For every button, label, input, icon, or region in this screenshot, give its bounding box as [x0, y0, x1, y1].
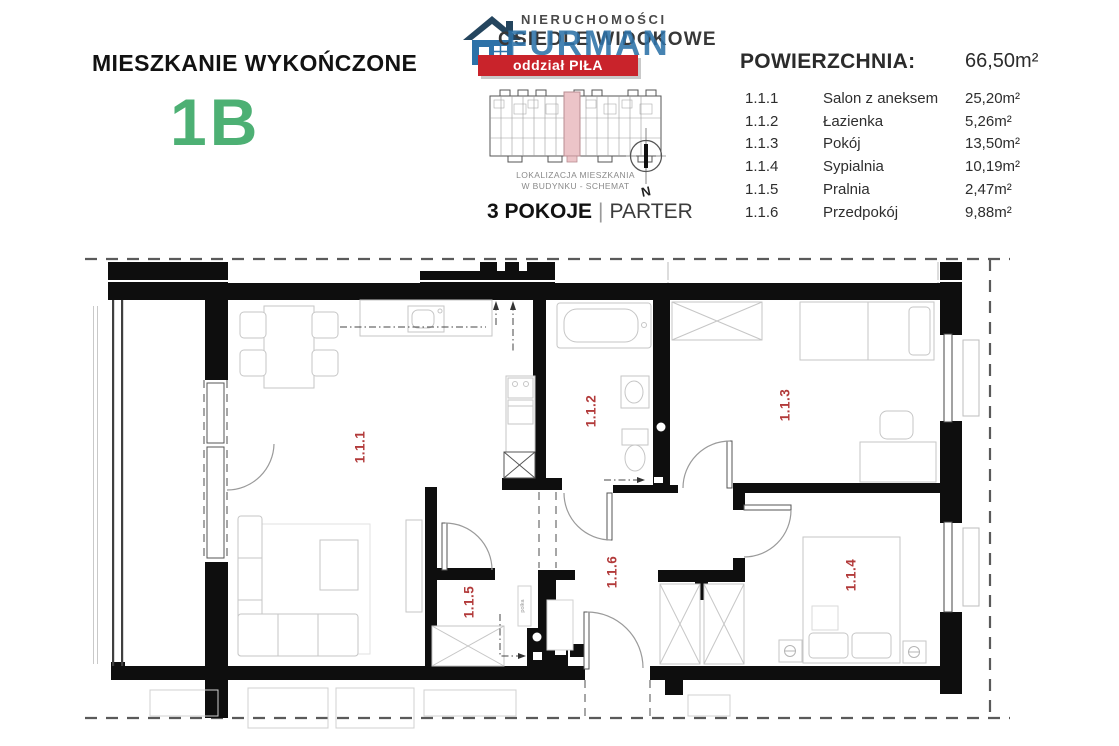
entrance-door-panel [584, 612, 589, 669]
page-title: MIESZKANIE WYKOŃCZONE [92, 50, 417, 77]
bathtub [557, 303, 651, 348]
shelf-label: polka [520, 598, 526, 612]
bathroom-door-arc [564, 493, 611, 540]
chair [312, 350, 338, 376]
tv-stand [406, 520, 422, 612]
window-sill-lines-top [668, 262, 938, 283]
laundry-door-arc [445, 523, 492, 570]
rooms-count: 3 POKOJE [487, 200, 592, 223]
room-label-1-1-1: 1.1.1 [353, 431, 368, 464]
area-heading: POWIERZCHNIA: [740, 50, 965, 74]
pillow [852, 633, 891, 658]
room3-door-panel [727, 441, 732, 488]
highlighted-unit [564, 92, 580, 156]
room-label-1-1-4: 1.1.4 [844, 559, 859, 592]
tall-cabinet-kitchen [504, 452, 535, 478]
logo-banner-oddzial-pila: oddział PIŁA [478, 55, 638, 76]
room-code: 1.1.2 [745, 111, 823, 134]
compass-icon: N [616, 126, 676, 200]
toilet-bowl [625, 445, 645, 471]
chair [312, 312, 338, 338]
room-area: 5,26m² [965, 111, 1045, 134]
vent-annotation-lines [340, 308, 637, 656]
room-area: 25,20m² [965, 88, 1045, 111]
chair [240, 350, 266, 376]
sofa-seat [238, 614, 358, 656]
room3-door-arc [683, 441, 730, 488]
room-area: 10,19m² [965, 156, 1045, 179]
room-label-1-1-2: 1.1.2 [584, 395, 599, 428]
desk [860, 442, 936, 482]
room4-door-arc [744, 510, 791, 557]
balcony-door-arc [227, 444, 274, 490]
room-area: 9,88m² [965, 202, 1045, 225]
table-row: 1.1.1 Salon z aneksem 25,20m² [745, 88, 1045, 111]
bathroom-door-panel [607, 493, 612, 540]
table-row: 1.1.6 Przedpokój 9,88m² [745, 202, 1045, 225]
hob [508, 378, 533, 398]
balcony-door-panel [207, 383, 224, 443]
right-window-2 [944, 522, 979, 612]
room-code: 1.1.5 [745, 179, 823, 202]
toilet-cistern [622, 429, 648, 445]
floor-plan-sheet: 1.1.1 1.1.2 1.1.3 1.1.4 1.1.5 1.1.6 polk… [0, 0, 1119, 746]
wardrobe-room3 [672, 302, 762, 340]
pillow [809, 633, 848, 658]
room-name: Pokój [823, 133, 965, 156]
rooms-floor-line: 3 POKOJE|PARTER [487, 200, 693, 224]
pillow [909, 307, 930, 355]
room-name: Pralnia [823, 179, 965, 202]
hall-cabinet [547, 600, 573, 650]
dining-table [264, 306, 314, 388]
washer-laundry [432, 626, 504, 666]
room-area: 13,50m² [965, 133, 1045, 156]
room-code: 1.1.6 [745, 202, 823, 225]
separator: | [592, 200, 609, 223]
room-label-1-1-6: 1.1.6 [605, 556, 620, 589]
desk-chair [880, 411, 913, 439]
terrace-furniture [150, 688, 730, 728]
room-area: 2,47m² [965, 179, 1045, 202]
right-window-1 [944, 334, 979, 422]
room-name: Sypialnia [823, 156, 965, 179]
room-name: Przedpokój [823, 202, 965, 225]
unit-number: 1B [170, 84, 260, 160]
room-name: Salon z aneksem [823, 88, 965, 111]
area-total: 66,50m² [965, 50, 1038, 74]
room-label-1-1-5: 1.1.5 [462, 586, 477, 619]
room-code: 1.1.1 [745, 88, 823, 111]
blanket-fold [812, 606, 838, 630]
left-window-wall [93, 300, 123, 666]
entrance-door-arc [587, 612, 643, 668]
area-table: 1.1.1 Salon z aneksem 25,20m² 1.1.2 Łazi… [745, 88, 1045, 224]
area-table-header: POWIERZCHNIA: 66,50m² [740, 50, 1046, 74]
chair [240, 312, 266, 338]
balcony-fixed-glazing [207, 447, 224, 558]
room-label-1-1-3: 1.1.3 [778, 389, 793, 422]
table-row: 1.1.4 Sypialnia 10,19m² [745, 156, 1045, 179]
room4-door-panel [744, 505, 791, 510]
room-name: Łazienka [823, 111, 965, 134]
table-row: 1.1.5 Pralnia 2,47m² [745, 179, 1045, 202]
table-row: 1.1.3 Pokój 13,50m² [745, 133, 1045, 156]
room-code: 1.1.3 [745, 133, 823, 156]
room-code: 1.1.4 [745, 156, 823, 179]
compass-north-label: N [640, 183, 652, 200]
laundry-door-panel [442, 523, 447, 570]
oven [508, 400, 533, 424]
table-row: 1.1.2 Łazienka 5,26m² [745, 111, 1045, 134]
coffee-table [320, 540, 358, 590]
floor-name: PARTER [610, 200, 693, 223]
